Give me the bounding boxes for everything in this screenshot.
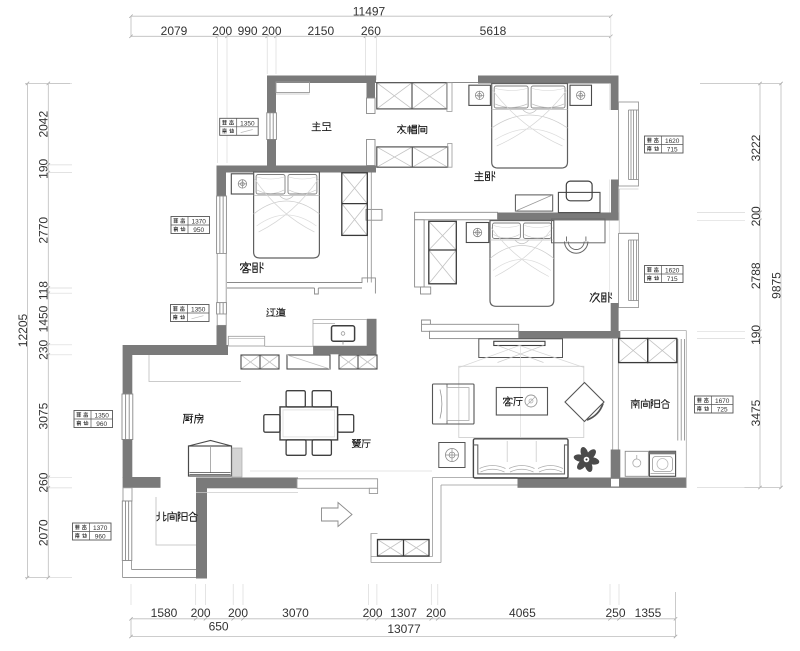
svg-text:190: 190 [749, 325, 763, 345]
svg-text:3475: 3475 [749, 399, 763, 426]
svg-text:12205: 12205 [16, 313, 30, 347]
svg-text:1370: 1370 [93, 525, 108, 532]
svg-text:2079: 2079 [161, 24, 188, 38]
svg-text:1450: 1450 [37, 305, 51, 332]
svg-text:725: 725 [717, 407, 728, 414]
svg-text:11497: 11497 [353, 5, 386, 19]
svg-text:260: 260 [37, 472, 51, 492]
svg-text:1355: 1355 [635, 606, 662, 620]
svg-text:3075: 3075 [37, 402, 51, 429]
svg-text:3222: 3222 [749, 134, 763, 161]
svg-text:950: 950 [193, 227, 204, 234]
svg-text:200: 200 [212, 24, 232, 38]
svg-text:1350: 1350 [240, 121, 255, 128]
svg-text:1580: 1580 [151, 606, 178, 620]
svg-text:200: 200 [363, 606, 383, 620]
svg-text:118: 118 [37, 281, 51, 300]
svg-text:1350: 1350 [94, 413, 109, 420]
svg-text:3070: 3070 [282, 606, 309, 620]
svg-text:1350: 1350 [191, 307, 206, 314]
svg-text:2070: 2070 [37, 519, 51, 546]
svg-text:1307: 1307 [390, 606, 417, 620]
svg-text:1670: 1670 [715, 398, 730, 405]
svg-text:5618: 5618 [480, 24, 507, 38]
svg-text:200: 200 [749, 206, 763, 226]
svg-text:1370: 1370 [191, 219, 206, 226]
svg-text:4065: 4065 [509, 606, 536, 620]
svg-text:715: 715 [667, 147, 678, 154]
svg-text:990: 990 [238, 24, 258, 38]
svg-text:9875: 9875 [770, 272, 784, 299]
svg-text:960: 960 [95, 534, 106, 541]
svg-text:260: 260 [361, 24, 381, 38]
svg-text:250: 250 [605, 606, 625, 620]
svg-text:1620: 1620 [665, 138, 680, 145]
svg-text:13077: 13077 [387, 622, 421, 636]
svg-text:650: 650 [209, 620, 229, 634]
svg-text:2150: 2150 [307, 24, 334, 38]
svg-text:960: 960 [96, 421, 107, 428]
svg-text:200: 200 [262, 24, 282, 38]
svg-text:190: 190 [37, 158, 51, 178]
svg-text:230: 230 [37, 339, 51, 359]
svg-text:715: 715 [667, 276, 678, 283]
svg-text:2770: 2770 [37, 217, 51, 244]
svg-text:2042: 2042 [37, 111, 51, 138]
svg-text:2788: 2788 [749, 262, 763, 289]
svg-text:200: 200 [191, 606, 211, 620]
svg-text:200: 200 [426, 606, 446, 620]
svg-text:1620: 1620 [665, 268, 680, 275]
svg-text:200: 200 [228, 606, 248, 620]
